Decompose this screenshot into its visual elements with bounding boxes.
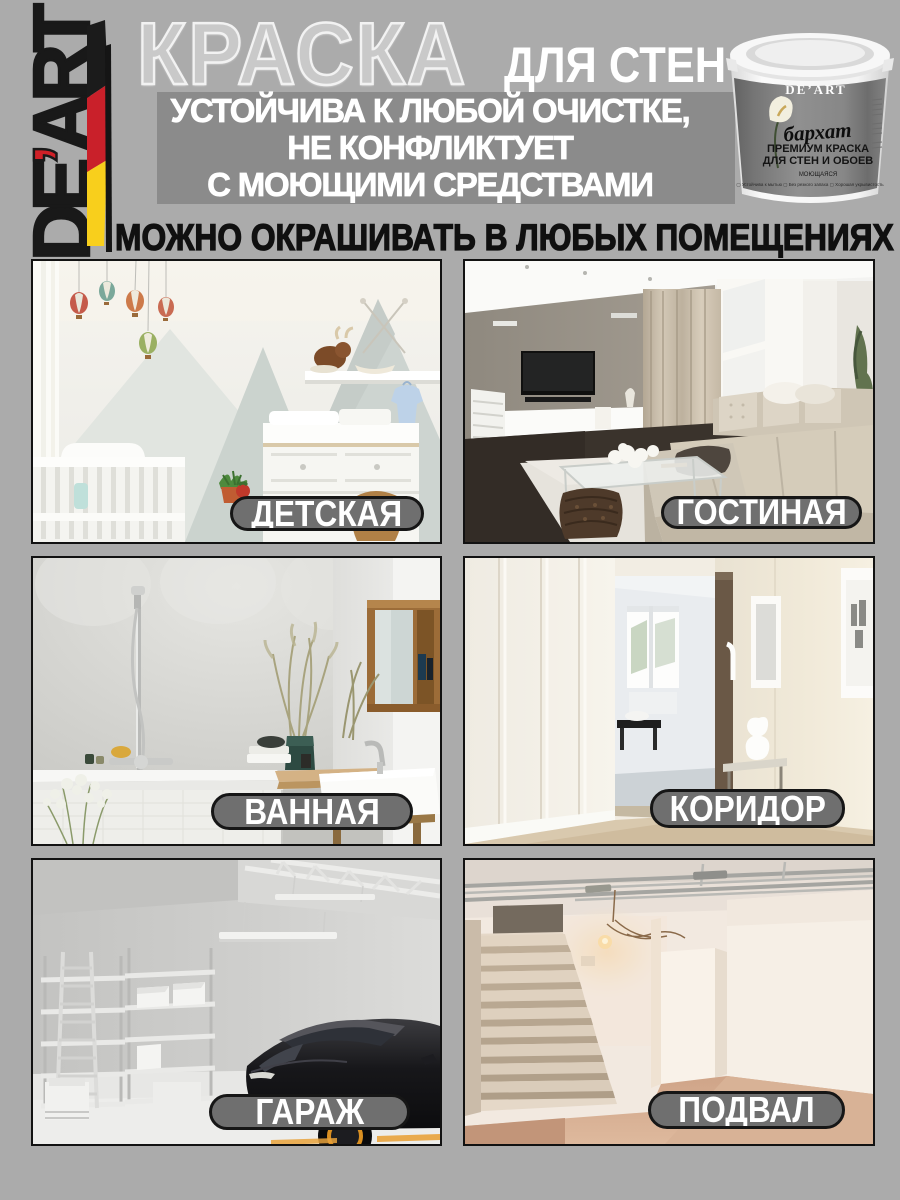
svg-text:▢ Устойчива к мытью ▢ Без рез: ▢ Устойчива к мытью ▢ Без резкого запаха… — [736, 181, 884, 187]
svg-text:ПРЕМИУМ КРАСКА: ПРЕМИУМ КРАСКА — [767, 143, 869, 155]
svg-text:DE’ART: DE’ART — [785, 82, 846, 97]
svg-text:ДЛЯ СТЕН И ОБОЕВ: ДЛЯ СТЕН И ОБОЕВ — [763, 155, 874, 167]
svg-text:МОЮЩАЯСЯ: МОЮЩАЯСЯ — [799, 172, 837, 178]
